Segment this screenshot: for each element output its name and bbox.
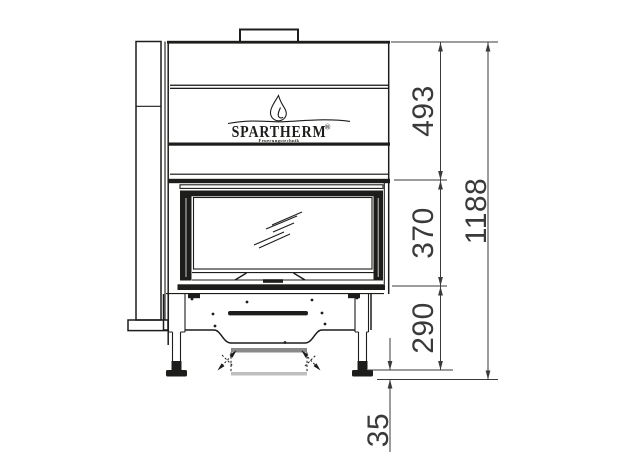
door-frame-top [180,191,383,197]
dim-label-base-section: 290 [407,302,440,354]
side-heat-shield [128,42,168,331]
air-intake-bottom-stipple [231,372,307,376]
base-bottom-profile [164,330,356,343]
sill-bottom-bar [178,284,386,290]
sill-slant-left [235,273,247,280]
bolt-dots [191,297,359,344]
dimension-total-height: 1188 [460,42,493,380]
flame-icon-inner [278,108,283,118]
cowl-seam-3 [170,174,389,175]
dim-label-window-section: 370 [407,207,440,259]
cowl-top-edge [167,41,390,44]
technical-drawing-canvas: SPARTHERM ® Feuerungstechnik [0,0,624,460]
dim-label-upper-section: 493 [407,85,440,137]
flue-stub [240,30,298,42]
base-frame [164,294,372,344]
dim-label-total-height: 1188 [460,178,493,245]
left-foot-spindle [172,361,182,371]
airflow-arrow-left [218,351,237,371]
cowl-seam-1 [170,85,389,86]
airflow-arrow-right [302,351,321,371]
spartherm-logo: SPARTHERM ® Feuerungstechnik [228,96,350,144]
air-intake-top-stipple [231,348,307,353]
registered-mark: ® [325,123,331,132]
glass-door [180,185,383,281]
cowl-seam-2 [170,88,389,89]
right-leveling-foot [352,370,373,377]
right-leg-outline [355,294,369,362]
door-sill [166,273,385,299]
mount-tab-left [188,294,200,299]
right-foot-spindle [358,361,368,371]
dimension-chain: 493 370 290 [407,42,443,370]
door-top-trim [180,185,383,189]
base-slot [228,311,308,315]
left-leg-outline [169,294,186,362]
left-leg [166,294,187,377]
left-leveling-foot [166,370,187,377]
glass-reflection-lines [254,212,302,248]
cowl-bottom-edge [168,179,390,183]
sill-slant-right [294,273,306,280]
dim-label-foot-adjust: 35 [362,413,395,447]
right-leg [352,294,373,377]
air-intake-outline [218,348,321,376]
flue-stub-outline [240,30,298,42]
glass-pane [194,198,373,270]
brand-tagline: Feuerungstechnik [259,138,300,143]
side-panel-outline [136,42,161,321]
fireplace-front-elevation: SPARTHERM ® Feuerungstechnik [0,0,624,460]
side-panel-flange [128,320,168,331]
door-latch [263,279,283,283]
